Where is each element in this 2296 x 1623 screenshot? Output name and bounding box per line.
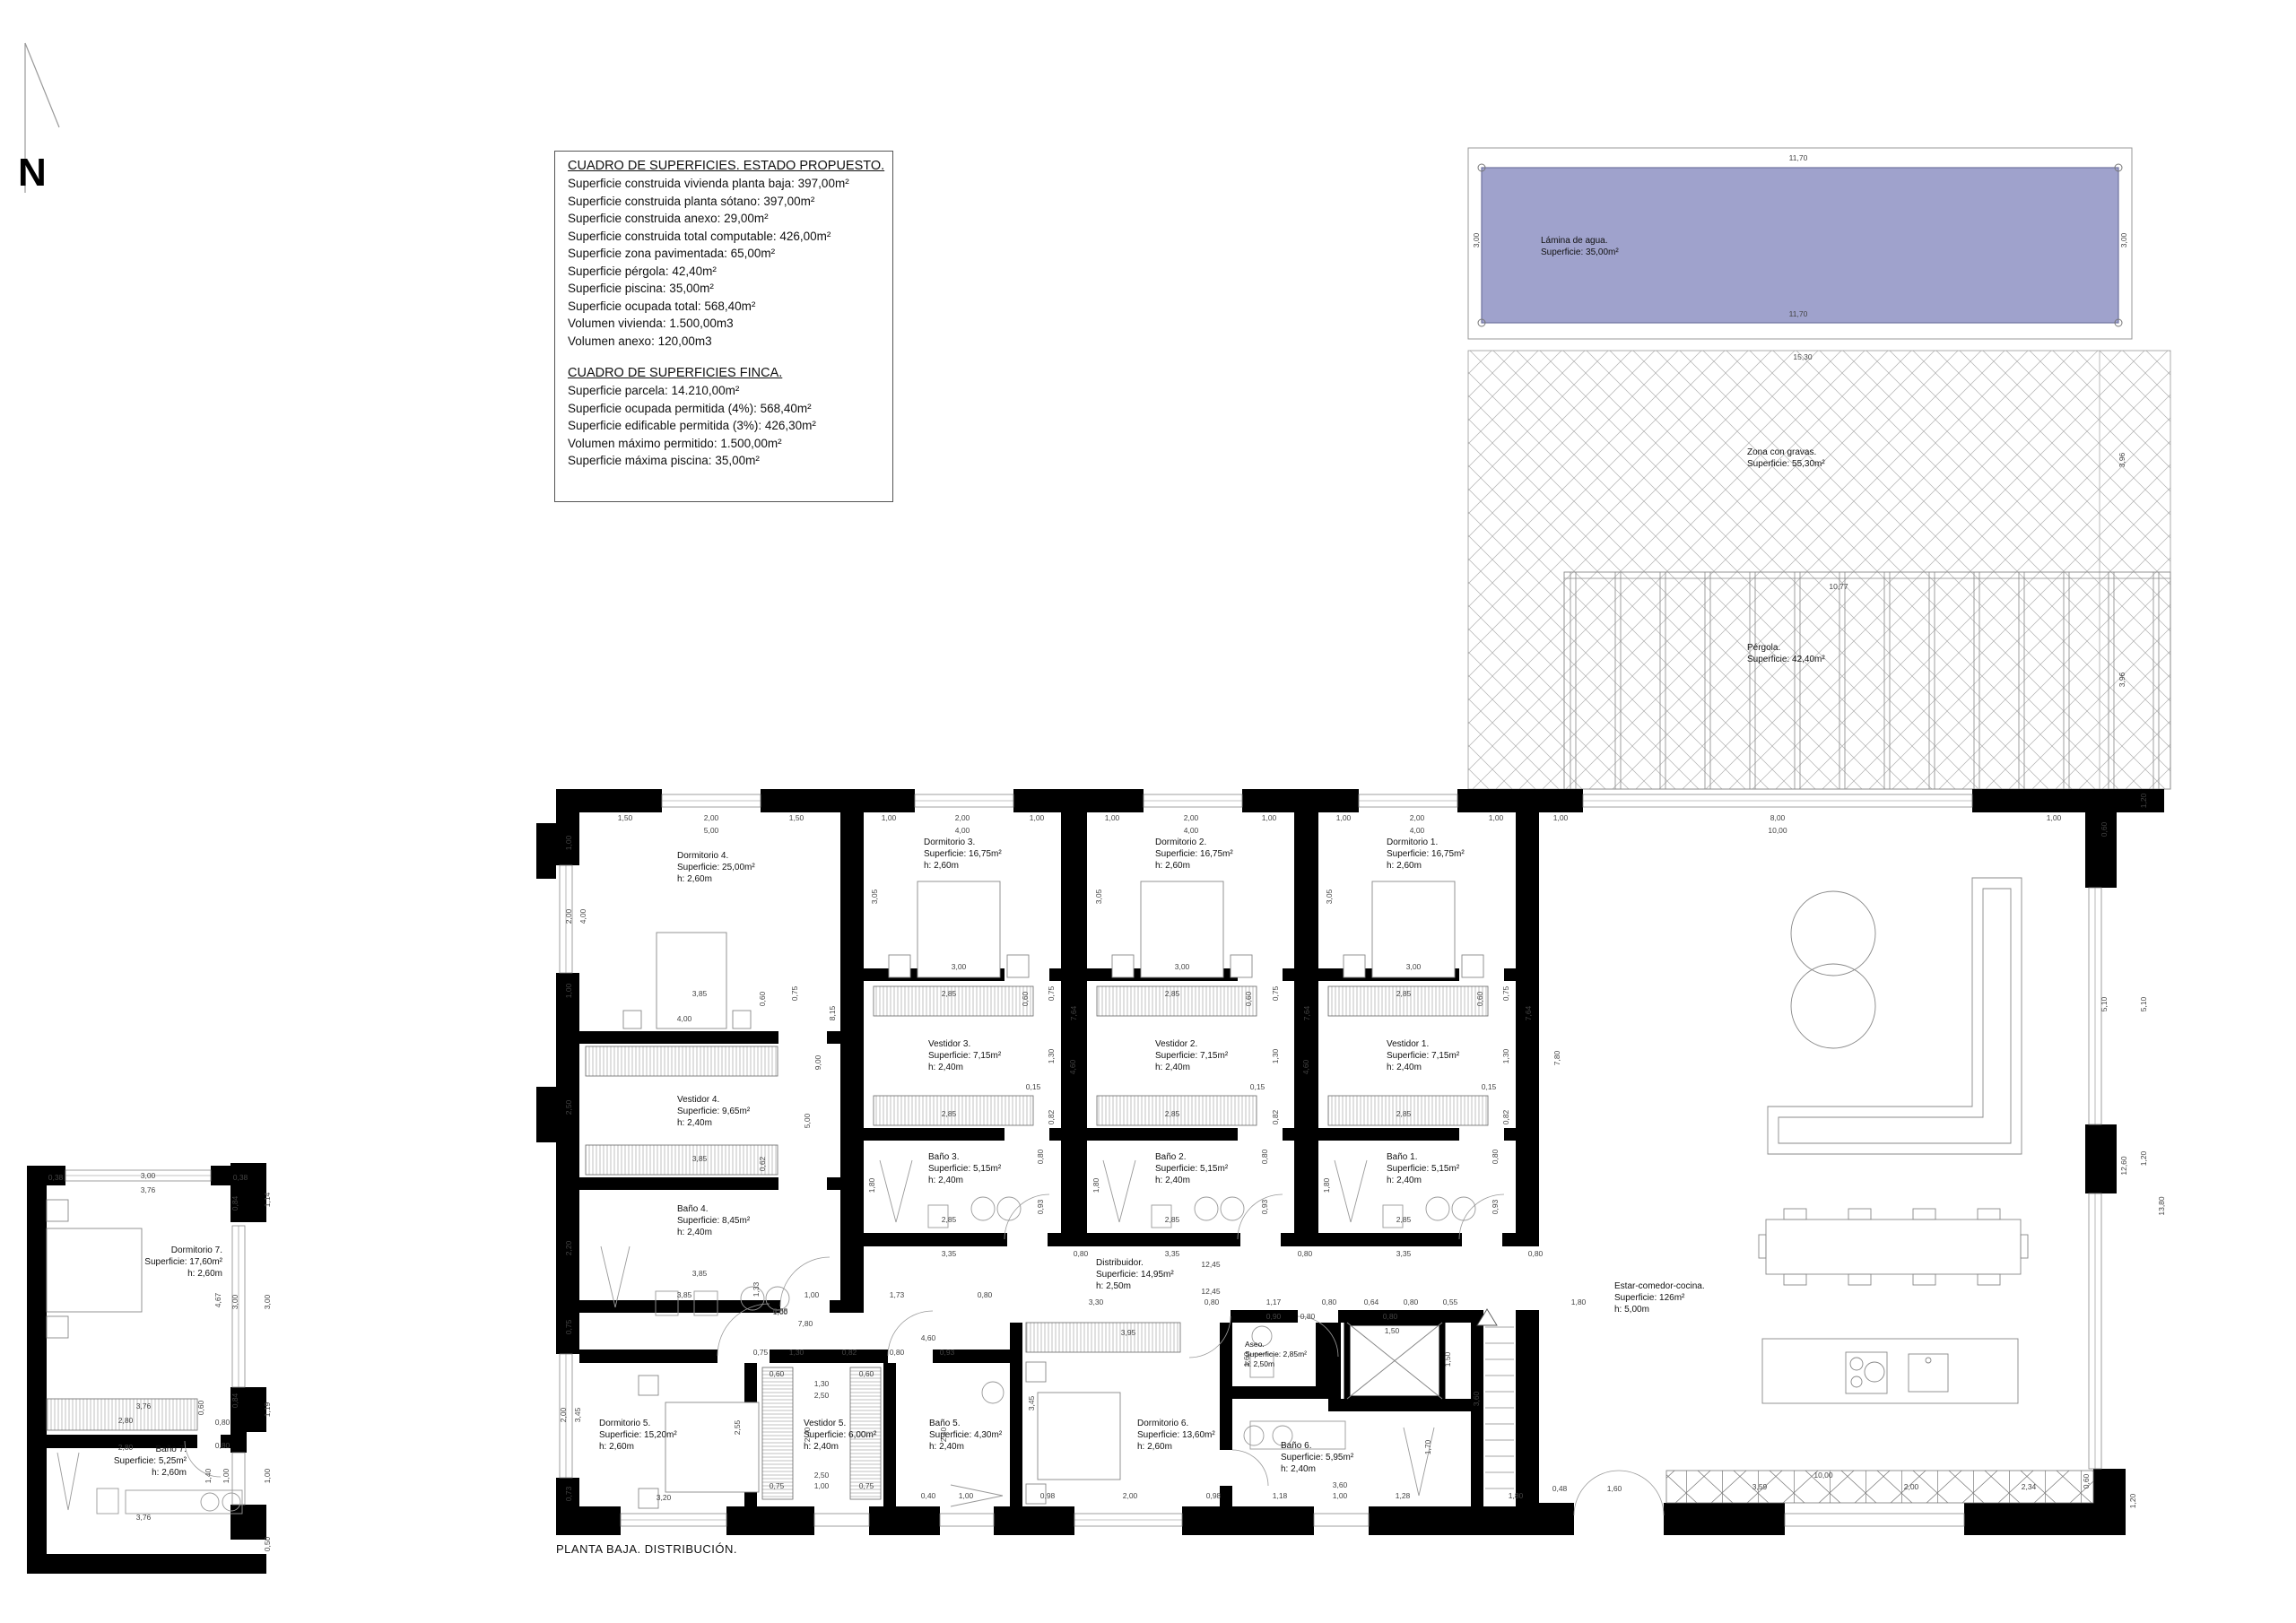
room-label-line: Baño 3. (928, 1151, 1001, 1163)
dimension-label: 4,60 (1301, 1060, 1310, 1075)
dimension-label: 7,64 (1524, 1006, 1533, 1021)
dimension-label: 0,75 (859, 1481, 874, 1490)
dimension-label: 9,00 (813, 1055, 822, 1071)
dimension-label: 3,76 (136, 1513, 152, 1522)
plan-linework (0, 0, 2296, 1623)
room-label-line: Lámina de agua. (1541, 235, 1619, 247)
dimension-label: 12,45 (1201, 1260, 1220, 1269)
dimension-label: 0,93 (1036, 1200, 1045, 1215)
room-label-line: Aseo. (1245, 1340, 1307, 1350)
dimension-label: 1,60 (1607, 1484, 1622, 1493)
dimension-label: 0,80 (890, 1348, 905, 1357)
dimension-label: 7,80 (798, 1319, 813, 1328)
north-arrow-label: N (18, 151, 47, 195)
dimension-label: 1,28 (1396, 1491, 1411, 1500)
dimension-label: 0,15 (1026, 1082, 1041, 1091)
dimension-label: 8,15 (828, 1006, 837, 1021)
room-label-line: h: 2,60m (1137, 1441, 1215, 1453)
room-label-line: Superficie: 14,95m² (1096, 1269, 1174, 1280)
room-label-line: Vestidor 3. (928, 1038, 1001, 1050)
dimension-label: 3,95 (1121, 1328, 1136, 1337)
dimension-label: 0,60 (1475, 992, 1484, 1007)
dimension-label: 2,50 (564, 1100, 573, 1115)
dimension-label: 1,30 (1271, 1049, 1280, 1064)
dimension-label: 7,64 (1069, 1006, 1078, 1021)
dimension-label: 0,50 (263, 1537, 272, 1552)
surface-line: Superficie máxima piscina: 35,00m² (568, 452, 892, 470)
dimension-label: 0,75 (1501, 986, 1510, 1002)
dimension-label: 2,85 (1396, 1215, 1412, 1224)
dimension-label: 0,90 (1266, 1312, 1282, 1321)
room-label-line: h: 2,60m (1155, 860, 1233, 872)
dimension-label: 0,75 (1047, 986, 1056, 1002)
room-label-line: h: 2,60m (924, 860, 1002, 872)
room-label-line: Dormitorio 4. (677, 850, 755, 862)
dimension-label: 8,00 (1770, 813, 1786, 822)
dimension-label: 1,00 (1336, 813, 1352, 822)
dimension-label: 2,80 (118, 1443, 134, 1452)
surface-line: Superficie ocupada permitida (4%): 568,4… (568, 400, 892, 418)
room-label: Zona con gravas.Superficie: 55,30m² (1747, 447, 1825, 470)
room-label-line: h: 2,40m (1281, 1463, 1353, 1475)
dimension-label: 0,80 (1036, 1150, 1045, 1165)
room-label-line: Distribuidor. (1096, 1257, 1174, 1269)
room-label-line: Superficie: 5,15m² (1155, 1163, 1228, 1175)
room-label-line: h: 2,50m (1245, 1359, 1307, 1369)
dimension-label: 1,00 (1262, 813, 1277, 822)
dimension-label: 3,05 (870, 890, 879, 905)
room-label-line: Superficie: 9,65m² (677, 1106, 750, 1117)
dimension-label: 0,80 (1298, 1249, 1313, 1258)
room-label-line: h: 2,40m (677, 1227, 750, 1238)
dimension-label: 3,45 (1027, 1396, 1036, 1411)
room-label-line: Superficie: 16,75m² (1387, 848, 1465, 860)
dimension-label: 3,00 (1406, 962, 1422, 971)
dimension-label: 3,00 (141, 1171, 156, 1180)
room-label: Pérgola.Superficie: 42,40m² (1747, 642, 1825, 665)
dimension-label: 5,00 (803, 1114, 812, 1129)
dimension-label: 1,00 (1553, 813, 1569, 822)
plan-title: PLANTA BAJA. DISTRIBUCIÓN. (556, 1542, 737, 1556)
room-label: Dormitorio 4.Superficie: 25,00m²h: 2,60m (677, 850, 755, 886)
dimension-label: 1,50 (789, 813, 804, 822)
room-label: Baño 4.Superficie: 8,45m²h: 2,40m (677, 1203, 750, 1239)
dimension-label: 2,00 (1904, 1482, 1919, 1491)
dimension-label: 3,35 (1165, 1249, 1180, 1258)
dimension-label: 0,75 (753, 1348, 769, 1357)
dimension-label: 3,00 (230, 1295, 239, 1310)
dimension-label: 1,00 (814, 1481, 830, 1490)
dimension-label: 0,98 (1040, 1491, 1056, 1500)
dimension-label: 0,15 (1482, 1082, 1497, 1091)
room-label-line: h: 2,40m (928, 1062, 1001, 1073)
dimension-label: 1,30 (1501, 1049, 1510, 1064)
dimension-label: 3,85 (677, 1290, 692, 1299)
room-label-line: Vestidor 1. (1387, 1038, 1459, 1050)
room-label-line: h: 2,40m (677, 1117, 750, 1129)
dimension-label: 3,00 (1175, 962, 1190, 971)
surface-line: Superficie zona pavimentada: 65,00m² (568, 245, 892, 263)
dimension-label: 0,73 (564, 1487, 573, 1502)
room-label: Vestidor 3.Superficie: 7,15m²h: 2,40m (928, 1038, 1001, 1074)
dimension-label: 3,35 (942, 1249, 957, 1258)
room-label-line: Superficie: 8,45m² (677, 1215, 750, 1227)
dimension-label: 3,20 (657, 1493, 672, 1502)
dimension-label: 5,00 (704, 826, 719, 835)
surface-line: Volumen anexo: 120,00m3 (568, 333, 892, 351)
dimension-label: 15,30 (1793, 352, 1812, 361)
dimension-label: 2,34 (2022, 1482, 2037, 1491)
dimension-label: 0,64 (1364, 1298, 1379, 1306)
dimension-label: 10,00 (1768, 826, 1787, 835)
surface-line: Volumen máximo permitido: 1.500,00m² (568, 435, 892, 453)
dimension-label: 0,80 (1491, 1150, 1500, 1165)
dimension-label: 0,80 (1074, 1249, 1089, 1258)
dimension-label: 1,80 (1322, 1178, 1331, 1193)
room-label-line: Superficie: 2,85m² (1245, 1350, 1307, 1359)
dimension-label: 1,80 (1509, 1491, 1524, 1500)
room-label-line: Superficie: 7,15m² (1155, 1050, 1228, 1062)
room-label-line: Superficie: 17,60m² (97, 1256, 222, 1268)
room-label-line: Vestidor 5. (804, 1418, 876, 1429)
room-label-line: Baño 1. (1387, 1151, 1459, 1163)
surface-line: Superficie pérgola: 42,40m² (568, 263, 892, 281)
room-label-line: h: 2,40m (929, 1441, 1002, 1453)
dimension-label: 3,30 (1089, 1298, 1104, 1306)
dimension-label: 3,05 (1094, 890, 1103, 905)
room-label-line: Baño 2. (1155, 1151, 1228, 1163)
dimension-label: 10,77 (1829, 582, 1848, 591)
surface-line: Superficie construida total computable: … (568, 228, 892, 246)
dimension-label: 0,38 (233, 1173, 248, 1182)
dimension-label: 2,85 (942, 1109, 957, 1118)
room-label: Dormitorio 5.Superficie: 15,20m²h: 2,60m (599, 1418, 677, 1454)
dimension-label: 2,55 (733, 1420, 742, 1436)
dimension-label: 2,40 (803, 1428, 812, 1443)
dimension-label: 2,80 (118, 1416, 134, 1425)
room-label-line: Dormitorio 6. (1137, 1418, 1215, 1429)
dimension-label: 2,00 (955, 813, 970, 822)
surface-line: Superficie edificable permitida (3%): 42… (568, 417, 892, 435)
room-label: Dormitorio 6.Superficie: 13,60m²h: 2,60m (1137, 1418, 1215, 1454)
dimension-label: 13,80 (2157, 1196, 2166, 1215)
room-label-line: Dormitorio 5. (599, 1418, 677, 1429)
room-label-line: h: 2,50m (1096, 1280, 1174, 1292)
room-label-line: Superficie: 7,15m² (928, 1050, 1001, 1062)
dimension-label: 0,80 (1260, 1150, 1269, 1165)
room-label-line: h: 2,60m (599, 1441, 677, 1453)
dimension-label: 1,00 (263, 1469, 272, 1484)
dimension-label: 2,85 (1165, 1215, 1180, 1224)
dimension-label: 1,20 (2139, 1151, 2148, 1167)
room-label-line: Superficie: 5,95m² (1281, 1452, 1353, 1463)
dimension-label: 1,50 (1385, 1326, 1400, 1335)
room-label-line: Superficie: 25,00m² (677, 862, 755, 873)
room-label-line: h: 2,60m (54, 1467, 187, 1479)
dimension-label: 0,48 (1552, 1484, 1568, 1493)
room-label-line: Superficie: 5,15m² (928, 1163, 1001, 1175)
room-label: Dormitorio 3.Superficie: 16,75m²h: 2,60m (924, 837, 1002, 872)
dimension-label: 3,05 (1325, 890, 1334, 905)
dimension-label: 1,50 (1443, 1352, 1452, 1367)
dimension-label: 4,60 (921, 1333, 936, 1342)
room-label: Vestidor 1.Superficie: 7,15m²h: 2,40m (1387, 1038, 1459, 1074)
dimension-label: 0,93 (1260, 1200, 1269, 1215)
dimension-label: 2,00 (1410, 813, 1425, 822)
dimension-label: 0,62 (758, 1157, 767, 1172)
dimension-label: 1,00 (564, 836, 573, 851)
dimension-label: 2,00 (1123, 1491, 1138, 1500)
room-label: Dormitorio 7.Superficie: 17,60m²h: 2,60m (97, 1245, 222, 1280)
dimension-label: 0,60 (859, 1369, 874, 1378)
dimension-label: 1,30 (789, 1348, 804, 1357)
dimension-label: 0,60 (758, 992, 767, 1007)
dimension-label: 0,84 (230, 1393, 239, 1409)
dimension-label: 1,20 (2128, 1494, 2137, 1509)
dimension-label: 0,75 (564, 1320, 573, 1335)
room-label-line: Superficie: 5,25m² (54, 1455, 187, 1467)
room-label-line: h: 2,40m (804, 1441, 876, 1453)
dimension-label: 4,00 (677, 1014, 692, 1023)
dimension-label: 0,93 (940, 1348, 955, 1357)
dimension-label: 1,00 (1105, 813, 1120, 822)
room-label-line: Superficie: 16,75m² (924, 848, 1002, 860)
dimension-label: 2,50 (814, 1471, 830, 1480)
dimension-label: 3,96 (2118, 453, 2126, 468)
room-label-line: Superficie: 6,00m² (804, 1429, 876, 1441)
dimension-label: 3,85 (692, 1269, 708, 1278)
dimension-label: 1,00 (564, 984, 573, 999)
dimension-label: 0,80 (1404, 1298, 1419, 1306)
room-label-line: Superficie: 7,15m² (1387, 1050, 1459, 1062)
dimension-label: 0,80 (215, 1441, 230, 1450)
dimension-label: 10,00 (1813, 1471, 1832, 1480)
dimension-label: 2,00 (564, 909, 573, 924)
dimension-label: 1,00 (1333, 1491, 1348, 1500)
dimension-label: 4,00 (1410, 826, 1425, 835)
dimension-label: 0,60 (1021, 992, 1030, 1007)
surface-line: Superficie construida anexo: 29,00m² (568, 210, 892, 228)
surface-line: Volumen vivienda: 1.500,00m3 (568, 315, 892, 333)
dimension-label: 3,76 (136, 1402, 152, 1410)
dimension-label: 3,76 (141, 1185, 156, 1194)
dimension-label: 2,85 (942, 1215, 957, 1224)
surface-table-proposed-lines: Superficie construida vivienda planta ba… (568, 175, 892, 350)
dimension-label: 1,19 (263, 1402, 272, 1418)
dimension-label: 6,88 (773, 1306, 788, 1315)
dimension-label: 1,14 (263, 1193, 272, 1208)
dimension-label: 0,38 (48, 1173, 64, 1182)
dimension-label: 0,82 (1501, 1110, 1510, 1125)
room-label: Baño 1.Superficie: 5,15m²h: 2,40m (1387, 1151, 1459, 1187)
room-label-line: Estar-comedor-cocina. (1614, 1280, 1705, 1292)
room-label-line: h: 2,60m (97, 1268, 222, 1280)
dimension-label: 1,73 (890, 1290, 905, 1299)
dimension-label: 0,82 (842, 1348, 857, 1357)
dimension-label: 0,80 (1322, 1298, 1337, 1306)
room-label-line: Pérgola. (1747, 642, 1825, 654)
dimension-label: 2,00 (559, 1408, 568, 1423)
room-label: Vestidor 4.Superficie: 9,65m²h: 2,40m (677, 1094, 750, 1130)
dimension-label: 12,60 (2119, 1156, 2128, 1175)
dimension-label: 2,85 (1165, 1109, 1180, 1118)
dimension-label: 3,00 (1472, 233, 1481, 248)
dimension-label: 0,80 (215, 1418, 230, 1427)
surface-line: Superficie construida planta sótano: 397… (568, 193, 892, 211)
room-label-line: h: 2,40m (1155, 1062, 1228, 1073)
surface-table: CUADRO DE SUPERFICIES. ESTADO PROPUESTO.… (554, 151, 893, 502)
dimension-label: 0,55 (1443, 1298, 1458, 1306)
dimension-label: 0,80 (1383, 1312, 1398, 1321)
surface-table-finca-title: CUADRO DE SUPERFICIES FINCA. (568, 366, 892, 380)
dimension-label: 1,33 (752, 1282, 761, 1298)
dimension-label: 1,17 (1266, 1298, 1282, 1306)
dimension-label: 1,20 (2139, 794, 2148, 809)
dimension-label: 0,93 (1491, 1200, 1500, 1215)
dimension-label: 2,00 (704, 813, 719, 822)
dimension-label: 1,00 (1489, 813, 1504, 822)
dimension-label: 4,00 (578, 909, 587, 924)
room-label-line: Zona con gravas. (1747, 447, 1825, 458)
floor-plan-canvas: N CUADRO DE SUPERFICIES. ESTADO PROPUEST… (0, 0, 2296, 1623)
dimension-label: 1,70 (1423, 1440, 1432, 1455)
dimension-label: 0,60 (2100, 822, 2109, 838)
dimension-label: 11,70 (1789, 153, 1808, 162)
dimension-label: 2,50 (814, 1391, 830, 1400)
room-label: Dormitorio 1.Superficie: 16,75m²h: 2,60m (1387, 837, 1465, 872)
surface-line: Superficie ocupada total: 568,40m² (568, 298, 892, 316)
dimension-label: 1,00 (222, 1469, 230, 1484)
dimension-label: 0,75 (770, 1481, 785, 1490)
room-label-line: h: 2,60m (677, 873, 755, 885)
dimension-label: 1,80 (1091, 1178, 1100, 1193)
dimension-label: 12,45 (1201, 1287, 1220, 1296)
dimension-label: 0,75 (790, 986, 799, 1002)
room-label-line: Superficie: 13,60m² (1137, 1429, 1215, 1441)
dimension-label: 2,85 (1396, 989, 1412, 998)
dimension-label: 1,80 (1571, 1298, 1587, 1306)
dimension-label: 3,45 (573, 1408, 582, 1423)
dimension-label: 3,85 (692, 1154, 708, 1163)
room-label: Lámina de agua.Superficie: 35,00m² (1541, 235, 1619, 258)
dimension-label: 1,30 (814, 1379, 830, 1388)
dimension-label: 3,59 (1752, 1482, 1768, 1491)
room-label: Dormitorio 2.Superficie: 16,75m²h: 2,60m (1155, 837, 1233, 872)
dimension-label: 1,80 (867, 1178, 876, 1193)
room-label-line: Superficie: 35,00m² (1541, 247, 1619, 258)
dimension-label: 2,85 (942, 989, 957, 998)
dimension-label: 3,00 (2119, 233, 2128, 248)
room-label-line: Superficie: 16,75m² (1155, 848, 1233, 860)
dimension-label: 3,60 (1472, 1392, 1481, 1407)
dimension-label: 5,10 (2100, 997, 2109, 1012)
room-label-line: Superficie: 15,20m² (599, 1429, 677, 1441)
dimension-label: 4,00 (1184, 826, 1199, 835)
dimension-label: 0,98 (1206, 1491, 1222, 1500)
room-label: Vestidor 5.Superficie: 6,00m²h: 2,40m (804, 1418, 876, 1454)
dimension-label: 1,00 (2047, 813, 2062, 822)
surface-table-finca-lines: Superficie parcela: 14.210,00m²Superfici… (568, 382, 892, 470)
dimension-label: 3,96 (2118, 673, 2126, 688)
room-label-line: h: 2,60m (1387, 860, 1465, 872)
surface-line: Superficie piscina: 35,00m² (568, 280, 892, 298)
room-label-line: Vestidor 2. (1155, 1038, 1228, 1050)
room-label: Vestidor 2.Superficie: 7,15m²h: 2,40m (1155, 1038, 1228, 1074)
dimension-label: 0,75 (1271, 986, 1280, 1002)
dimension-label: 2,20 (564, 1241, 573, 1256)
room-label-line: Dormitorio 1. (1387, 837, 1465, 848)
dimension-label: 1,40 (204, 1469, 213, 1484)
surface-line: Superficie construida vivienda planta ba… (568, 175, 892, 193)
dimension-label: 2,40 (939, 1428, 948, 1443)
dimension-label: 11,70 (1789, 309, 1808, 318)
dimension-label: 0,60 (1244, 992, 1253, 1007)
room-label-line: Superficie: 5,15m² (1387, 1163, 1459, 1175)
room-label: Aseo.Superficie: 2,85m²h: 2,50m (1245, 1340, 1307, 1370)
dimension-label: 4,60 (1068, 1060, 1077, 1075)
dimension-label: 2,85 (1396, 1109, 1412, 1118)
room-label: Baño 2.Superficie: 5,15m²h: 2,40m (1155, 1151, 1228, 1187)
dimension-label: 0,80 (1205, 1298, 1220, 1306)
dimension-label: 0,15 (1250, 1082, 1265, 1091)
surface-line: Superficie parcela: 14.210,00m² (568, 382, 892, 400)
dimension-label: 3,60 (1333, 1480, 1348, 1489)
dimension-label: 0,80 (1528, 1249, 1544, 1258)
room-label: Distribuidor.Superficie: 14,95m²h: 2,50m (1096, 1257, 1174, 1293)
dimension-label: 0,84 (230, 1196, 239, 1211)
room-label-line: h: 5,00m (1614, 1304, 1705, 1315)
room-label: Baño 6.Superficie: 5,95m²h: 2,40m (1281, 1440, 1353, 1476)
room-label-line: Dormitorio 2. (1155, 837, 1233, 848)
dimension-label: 1,00 (959, 1491, 974, 1500)
room-label-line: Baño 6. (1281, 1440, 1353, 1452)
dimension-label: 1,50 (618, 813, 633, 822)
dimension-label: 3,00 (263, 1295, 272, 1310)
dimension-label: 1,30 (1047, 1049, 1056, 1064)
dimension-label: 5,10 (2139, 997, 2148, 1012)
room-label-line: h: 2,40m (928, 1175, 1001, 1186)
room-label-line: Dormitorio 3. (924, 837, 1002, 848)
dimension-label: 1,18 (1273, 1491, 1288, 1500)
dimension-label: 2,85 (1165, 989, 1180, 998)
dimension-label: 1,00 (804, 1290, 820, 1299)
dimension-label: 0,82 (1271, 1110, 1280, 1125)
dimension-label: 7,64 (1302, 1006, 1311, 1021)
room-label: Estar-comedor-cocina.Superficie: 126m²h:… (1614, 1280, 1705, 1316)
room-label-line: h: 2,40m (1155, 1175, 1228, 1186)
dimension-label: 0,82 (1047, 1110, 1056, 1125)
dimension-label: 0,80 (1300, 1312, 1316, 1321)
dimension-label: 4,00 (955, 826, 970, 835)
room-label-line: h: 2,40m (1387, 1175, 1459, 1186)
room-label-line: Vestidor 4. (677, 1094, 750, 1106)
room-label-line: h: 2,40m (1387, 1062, 1459, 1073)
dimension-label: 3,35 (1396, 1249, 1412, 1258)
dimension-label: 3,85 (692, 989, 708, 998)
room-label-line: Baño 4. (677, 1203, 750, 1215)
dimension-label: 1,60 (1242, 1352, 1251, 1367)
dimension-label: 7,80 (1552, 1051, 1561, 1066)
dimension-label: 0,60 (196, 1401, 205, 1416)
dimension-label: 0,40 (921, 1491, 936, 1500)
dimension-label: 1,00 (882, 813, 897, 822)
dimension-label: 1,00 (1030, 813, 1045, 822)
room-label-line: Superficie: 42,40m² (1747, 654, 1825, 665)
dimension-label: 0,60 (770, 1369, 785, 1378)
dimension-label: 2,00 (1184, 813, 1199, 822)
surface-table-proposed-title: CUADRO DE SUPERFICIES. ESTADO PROPUESTO. (568, 159, 892, 173)
dimension-label: 3,00 (952, 962, 967, 971)
